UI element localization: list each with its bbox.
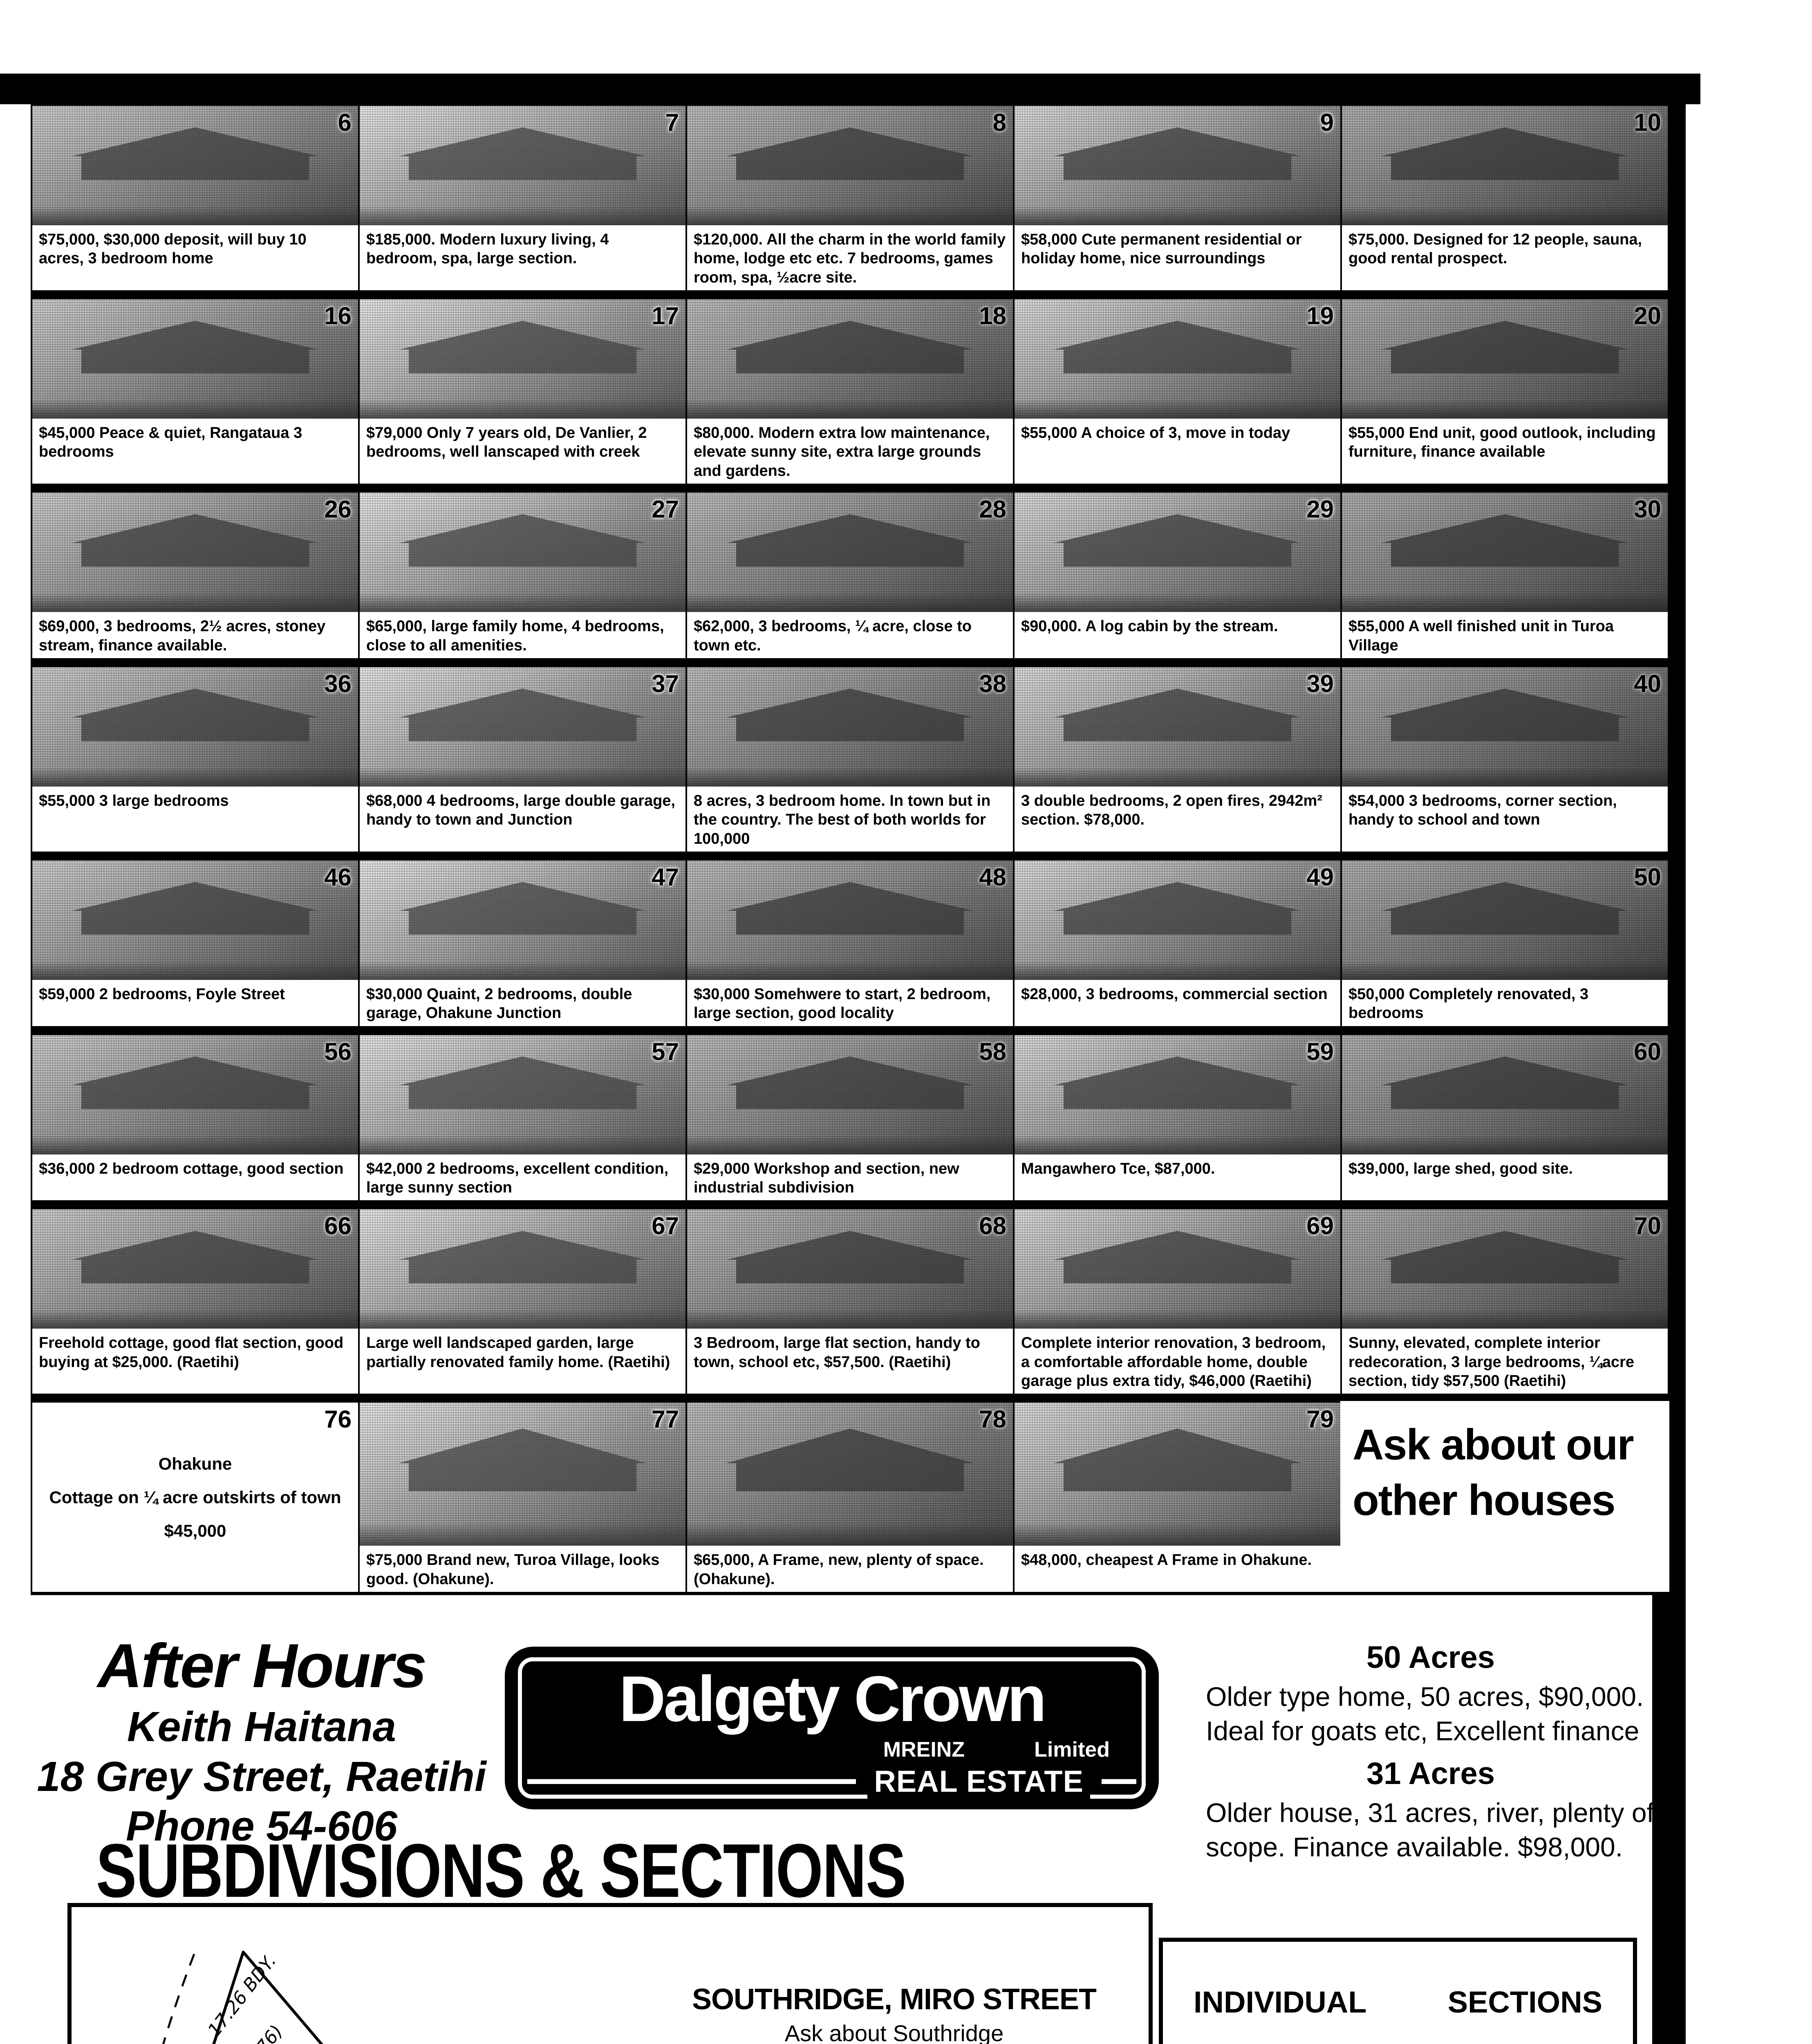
listing-number: 9 [1320, 108, 1334, 137]
listing-number: 17 [652, 302, 679, 330]
property-photo: 40 [1342, 667, 1668, 787]
listing-number: 70 [1634, 1212, 1661, 1240]
listing-caption: $58,000 Cute permanent residential or ho… [1015, 225, 1340, 271]
listing-cell: 7 $185,000. Modern luxury living, 4 bedr… [358, 104, 687, 290]
listing-caption: $30,000 Quaint, 2 bedrooms, double garag… [360, 980, 685, 1026]
subdivision-map: A B C LEGAL SEC. 110A P.W. ACT 1928 LEGA… [72, 1907, 632, 2044]
listing-number: 47 [652, 863, 679, 891]
property-photo: 17 [360, 299, 685, 419]
acres-heading-50: 50 Acres [1206, 1640, 1655, 1675]
listing-cell: 17 $79,000 Only 7 years old, De Vanlier,… [358, 298, 687, 484]
subdivisions-headline: SUBDIVISIONS & SECTIONS [96, 1827, 906, 1914]
ask-note-text: Ask about our other houses [1340, 1401, 1669, 1528]
agent-name: Keith Haitana [25, 1702, 499, 1752]
listings-row: 16 $45,000 Peace & quiet, Rangataua 3 be… [31, 298, 1678, 491]
property-photo: 59 [1015, 1035, 1340, 1154]
listing-number: 60 [1634, 1038, 1661, 1066]
logo-mreinz: MREINZ [883, 1737, 965, 1762]
listing-number: 76 [324, 1405, 352, 1433]
property-photo: 46 [32, 861, 358, 980]
listing-number: 8 [993, 108, 1006, 137]
listing-cell: 76OhakuneCottage on ¼ acre outskirts of … [31, 1401, 360, 1592]
listing-cell: 67 Large well landscaped garden, large p… [358, 1208, 687, 1394]
listing-cell: 28 $62,000, 3 bedrooms, ¼ acre, close to… [685, 491, 1015, 658]
acreage-ads: 50 Acres Older type home, 50 acres, $90,… [1206, 1637, 1655, 1872]
listing-caption: $79,000 Only 7 years old, De Vanlier, 2 … [360, 419, 685, 465]
listing-cell: 58 $29,000 Workshop and section, new ind… [685, 1033, 1015, 1201]
listing-number: 77 [652, 1405, 679, 1433]
listing-caption: $68,000 4 bedrooms, large double garage,… [360, 787, 685, 833]
listing-cell: 8 $120,000. All the charm in the world f… [685, 104, 1015, 290]
ask-note-cell: Ask about our other houses [1340, 1401, 1669, 1592]
listing-cell: 69 Complete interior renovation, 3 bedro… [1013, 1208, 1342, 1394]
listing-caption: 3 double bedrooms, 2 open fires, 2942m² … [1015, 787, 1340, 833]
listings-row: 66 Freehold cottage, good flat section, … [31, 1208, 1678, 1401]
listing-cell: 9 $58,000 Cute permanent residential or … [1013, 104, 1342, 290]
listing-caption: $29,000 Workshop and section, new indust… [687, 1154, 1013, 1201]
listing-caption: $42,000 2 bedrooms, excellent condition,… [360, 1154, 685, 1201]
listing-caption: $120,000. All the charm in the world fam… [687, 225, 1013, 290]
listing-number: 10 [1634, 108, 1661, 137]
listing-text-line: Ohakune [159, 1454, 232, 1474]
listing-number: 7 [665, 108, 679, 137]
listing-cell: 18 $80,000. Modern extra low maintenance… [685, 298, 1015, 484]
listing-cell: 68 3 Bedroom, large flat section, handy … [685, 1208, 1015, 1394]
property-photo: 47 [360, 861, 685, 980]
listing-number: 18 [979, 302, 1006, 330]
listing-cell: 6 $75,000, $30,000 deposit, will buy 10 … [31, 104, 360, 290]
listing-caption: $75,000. Designed for 12 people, sauna, … [1342, 225, 1668, 271]
newspaper-page: 6 $75,000, $30,000 deposit, will buy 10 … [0, 0, 1812, 2044]
property-photo: 27 [360, 493, 685, 612]
listing-number: 37 [652, 670, 679, 698]
listing-caption: $39,000, large shed, good site. [1342, 1154, 1668, 1181]
listing-caption: $62,000, 3 bedrooms, ¼ acre, close to to… [687, 612, 1013, 658]
listing-number: 27 [652, 495, 679, 523]
property-photo: 67 [360, 1209, 685, 1329]
property-photo: 7 [360, 106, 685, 225]
property-photo: 60 [1342, 1035, 1668, 1154]
property-photo: 18 [687, 299, 1013, 419]
listing-caption: Mangawhero Tce, $87,000. [1015, 1154, 1340, 1181]
listing-number: 30 [1634, 495, 1661, 523]
listing-cell: 47 $30,000 Quaint, 2 bedrooms, double ga… [358, 859, 687, 1026]
listings-grid: 6 $75,000, $30,000 deposit, will buy 10 … [31, 104, 1678, 1595]
subdivisions-box: A B C LEGAL SEC. 110A P.W. ACT 1928 LEGA… [67, 1903, 1153, 2044]
listings-row: 36 $55,000 3 large bedrooms 37 $68,000 4… [31, 666, 1678, 859]
listing-caption: $45,000 Peace & quiet, Rangataua 3 bedro… [32, 419, 358, 465]
property-photo: 78 [687, 1403, 1013, 1546]
property-photo: 20 [1342, 299, 1668, 419]
southridge-line-1: Ask about Southridge [642, 2016, 1147, 2044]
listing-caption: $55,000 End unit, good outlook, includin… [1342, 419, 1668, 465]
listing-number: 50 [1634, 863, 1661, 891]
property-photo: 30 [1342, 493, 1668, 612]
listing-number: 68 [979, 1212, 1006, 1240]
listings-row: 76OhakuneCottage on ¼ acre outskirts of … [31, 1401, 1678, 1595]
listing-cell: 77 $75,000 Brand new, Turoa Village, loo… [358, 1401, 687, 1592]
listing-caption: $55,000 A well finished unit in Turoa Vi… [1342, 612, 1668, 658]
individual-heading-word2: SECTIONS [1448, 1985, 1602, 2019]
listing-number: 56 [324, 1038, 352, 1066]
listing-number: 66 [324, 1212, 352, 1240]
listing-caption: $65,000, large family home, 4 bedrooms, … [360, 612, 685, 658]
listing-caption: Sunny, elevated, complete interior redec… [1342, 1329, 1668, 1394]
individual-sections-box: INDIVIDUAL SECTIONS OHAKUNEFrom 300m² to… [1159, 1938, 1637, 2044]
logo-real-estate: REAL ESTATE [867, 1764, 1090, 1799]
top-rule-bar [0, 74, 1700, 104]
property-photo: 49 [1015, 861, 1340, 980]
property-photo: 69 [1015, 1209, 1340, 1329]
listings-row: 26 $69,000, 3 bedrooms, 2½ acres, stoney… [31, 491, 1678, 666]
property-photo: 77 [360, 1403, 685, 1546]
listing-caption: $75,000, $30,000 deposit, will buy 10 ac… [32, 225, 358, 271]
logo-subline: MREINZ Limited [883, 1737, 1110, 1762]
listing-cell: 19 $55,000 A choice of 3, move in today [1013, 298, 1342, 484]
property-photo: 9 [1015, 106, 1340, 225]
listing-caption: $185,000. Modern luxury living, 4 bedroo… [360, 225, 685, 271]
listing-caption: $48,000, cheapest A Frame in Ohakune. [1015, 1546, 1340, 1573]
listing-number: 29 [1306, 495, 1334, 523]
listing-caption: $90,000. A log cabin by the stream. [1015, 612, 1340, 639]
listing-number: 40 [1634, 670, 1661, 698]
property-photo: 57 [360, 1035, 685, 1154]
property-photo: 26 [32, 493, 358, 612]
property-photo: 8 [687, 106, 1013, 225]
listing-cell: 29 $90,000. A log cabin by the stream. [1013, 491, 1342, 658]
listing-cell: 70 Sunny, elevated, complete interior re… [1340, 1208, 1669, 1394]
property-photo: 70 [1342, 1209, 1668, 1329]
listings-row: 6 $75,000, $30,000 deposit, will buy 10 … [31, 104, 1678, 298]
listing-number: 67 [652, 1212, 679, 1240]
property-photo: 29 [1015, 493, 1340, 612]
property-photo: 56 [32, 1035, 358, 1154]
legal-boundary-dashed [110, 1954, 194, 2044]
listing-cell: 36 $55,000 3 large bedrooms [31, 666, 360, 852]
listing-caption: 8 acres, 3 bedroom home. In town but in … [687, 787, 1013, 852]
listing-caption: Complete interior renovation, 3 bedroom,… [1015, 1329, 1340, 1394]
listing-cell: 59 Mangawhero Tce, $87,000. [1013, 1033, 1342, 1201]
listing-number: 19 [1306, 302, 1334, 330]
listing-caption: $75,000 Brand new, Turoa Village, looks … [360, 1546, 685, 1592]
listing-number: 69 [1306, 1212, 1334, 1240]
listing-cell: 39 3 double bedrooms, 2 open fires, 2942… [1013, 666, 1342, 852]
after-hours-block: After Hours Keith Haitana 18 Grey Street… [25, 1630, 499, 1851]
property-photo: 66 [32, 1209, 358, 1329]
listing-caption: $55,000 3 large bedrooms [32, 787, 358, 814]
listing-number: 79 [1306, 1405, 1334, 1433]
property-photo: 6 [32, 106, 358, 225]
acres-body-31: Older house, 31 acres, river, plenty of … [1206, 1795, 1655, 1865]
listing-number: 49 [1306, 863, 1334, 891]
after-hours-title: After Hours [25, 1630, 499, 1702]
listing-number: 6 [338, 108, 352, 137]
property-photo: 36 [32, 667, 358, 787]
listing-cell: 66 Freehold cottage, good flat section, … [31, 1208, 360, 1394]
individual-heading-word1: INDIVIDUAL [1194, 1985, 1366, 2019]
listing-cell: 10 $75,000. Designed for 12 people, saun… [1340, 104, 1669, 290]
listing-caption: Large well landscaped garden, large part… [360, 1329, 685, 1375]
listing-caption: $50,000 Completely renovated, 3 bedrooms [1342, 980, 1668, 1026]
listing-number: 46 [324, 863, 352, 891]
acres-heading-31: 31 Acres [1206, 1756, 1655, 1791]
listing-cell: 49 $28,000, 3 bedrooms, commercial secti… [1013, 859, 1342, 1026]
listing-text-line: Cottage on ¼ acre outskirts of town [49, 1488, 341, 1507]
listing-caption: 3 Bedroom, large flat section, handy to … [687, 1329, 1013, 1375]
listing-cell: 40 $54,000 3 bedrooms, corner section, h… [1340, 666, 1669, 852]
listing-caption: $28,000, 3 bedrooms, commercial section [1015, 980, 1340, 1007]
listing-cell: 60 $39,000, large shed, good site. [1340, 1033, 1669, 1201]
southridge-heading: SOUTHRIDGE, MIRO STREET [642, 1983, 1147, 2016]
listing-number: 78 [979, 1405, 1006, 1433]
listing-cell: 16 $45,000 Peace & quiet, Rangataua 3 be… [31, 298, 360, 484]
plat-map-svg: A B C LEGAL SEC. 110A P.W. ACT 1928 LEGA… [72, 1907, 632, 2044]
property-photo: 39 [1015, 667, 1340, 787]
property-photo: 16 [32, 299, 358, 419]
listing-cell: 26 $69,000, 3 bedrooms, 2½ acres, stoney… [31, 491, 360, 658]
listing-caption: $80,000. Modern extra low maintenance, e… [687, 419, 1013, 484]
listing-number: 58 [979, 1038, 1006, 1066]
listing-caption: $69,000, 3 bedrooms, 2½ acres, stoney st… [32, 612, 358, 658]
property-photo: 79 [1015, 1403, 1340, 1546]
listing-caption: Freehold cottage, good flat section, goo… [32, 1329, 358, 1375]
listing-text-line: $45,000 [164, 1521, 226, 1541]
listing-number: 57 [652, 1038, 679, 1066]
listing-cell: 78 $65,000, A Frame, new, plenty of spac… [685, 1401, 1015, 1592]
property-photo: 50 [1342, 861, 1668, 980]
listing-caption: $30,000 Somehwere to start, 2 bedroom, l… [687, 980, 1013, 1026]
property-photo: 37 [360, 667, 685, 787]
listing-text-lines: OhakuneCottage on ¼ acre outskirts of to… [32, 1403, 358, 1592]
listing-number: 16 [324, 302, 352, 330]
listing-caption: $55,000 A choice of 3, move in today [1015, 419, 1340, 446]
listing-caption: $36,000 2 bedroom cottage, good section [32, 1154, 358, 1181]
logo-real-estate-row: REAL ESTATE [527, 1764, 1136, 1799]
listing-cell: 57 $42,000 2 bedrooms, excellent conditi… [358, 1033, 687, 1201]
listing-number: 39 [1306, 670, 1334, 698]
property-photo: 28 [687, 493, 1013, 612]
listing-number: 20 [1634, 302, 1661, 330]
listing-caption: $59,000 2 bedrooms, Foyle Street [32, 980, 358, 1007]
listing-cell: 30 $55,000 A well finished unit in Turoa… [1340, 491, 1669, 658]
listing-number: 28 [979, 495, 1006, 523]
logo-limited: Limited [1034, 1737, 1110, 1762]
listing-cell: 27 $65,000, large family home, 4 bedroom… [358, 491, 687, 658]
logo-name: Dalgety Crown [505, 1662, 1159, 1736]
listing-cell: 50 $50,000 Completely renovated, 3 bedro… [1340, 859, 1669, 1026]
listing-number: 38 [979, 670, 1006, 698]
property-photo: 48 [687, 861, 1013, 980]
listing-number: 36 [324, 670, 352, 698]
listing-cell: 37 $68,000 4 bedrooms, large double gara… [358, 666, 687, 852]
listing-cell: 79 $48,000, cheapest A Frame in Ohakune. [1013, 1401, 1342, 1592]
property-photo: 68 [687, 1209, 1013, 1329]
listing-number: 26 [324, 495, 352, 523]
individual-heading: INDIVIDUAL SECTIONS [1163, 1985, 1633, 2019]
listing-caption: $54,000 3 bedrooms, corner section, hand… [1342, 787, 1668, 833]
listing-number: 59 [1306, 1038, 1334, 1066]
map-bearing-label: (35.76) [230, 2021, 287, 2044]
property-photo: 38 [687, 667, 1013, 787]
listing-cell: 48 $30,000 Somehwere to start, 2 bedroom… [685, 859, 1015, 1026]
property-photo: 19 [1015, 299, 1340, 419]
dalgety-crown-logo: Dalgety Crown MREINZ Limited REAL ESTATE [505, 1647, 1159, 1809]
acres-body-50: Older type home, 50 acres, $90,000. Idea… [1206, 1679, 1655, 1748]
listing-number: 48 [979, 863, 1006, 891]
listing-cell: 46 $59,000 2 bedrooms, Foyle Street [31, 859, 360, 1026]
listing-caption: $65,000, A Frame, new, plenty of space. … [687, 1546, 1013, 1592]
listing-cell: 20 $55,000 End unit, good outlook, inclu… [1340, 298, 1669, 484]
subdivision-text-column: SOUTHRIDGE, MIRO STREET Ask about Southr… [642, 1907, 1147, 2044]
property-photo: 58 [687, 1035, 1013, 1154]
listings-row: 56 $36,000 2 bedroom cottage, good secti… [31, 1033, 1678, 1208]
listings-row: 46 $59,000 2 bedrooms, Foyle Street 47 $… [31, 859, 1678, 1033]
listing-cell: 38 8 acres, 3 bedroom home. In town but … [685, 666, 1015, 852]
property-photo: 10 [1342, 106, 1668, 225]
listing-cell: 56 $36,000 2 bedroom cottage, good secti… [31, 1033, 360, 1201]
agent-address: 18 Grey Street, Raetihi [25, 1752, 499, 1802]
